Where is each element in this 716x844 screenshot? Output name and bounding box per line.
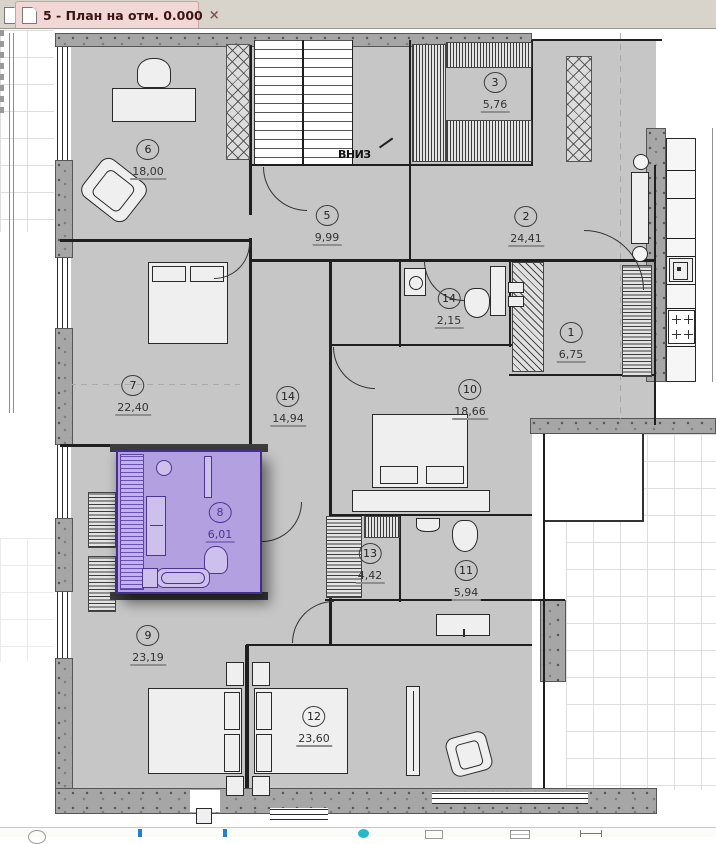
- dresser-room10[interactable]: [352, 490, 490, 512]
- counter-division: [667, 198, 695, 199]
- wall-southeast[interactable]: [530, 418, 716, 434]
- nightstand[interactable]: [226, 662, 244, 686]
- washing-machine[interactable]: [404, 268, 426, 296]
- wall-left-4[interactable]: [55, 658, 73, 790]
- tab-title: 5 - План на отм. 0.000: [43, 8, 203, 23]
- nightstand[interactable]: [226, 776, 244, 796]
- wall-left-2[interactable]: [55, 328, 73, 445]
- room-area: 18,00: [130, 165, 166, 180]
- window-left-3[interactable]: [57, 445, 71, 518]
- wall-int[interactable]: [325, 599, 565, 601]
- pillow: [256, 734, 272, 772]
- window-bottom-2[interactable]: [432, 792, 588, 804]
- cabinet-selected-room[interactable]: [146, 496, 166, 556]
- balcony-rail-line: [13, 33, 14, 413]
- pillow: [224, 692, 240, 730]
- window-bottom-1[interactable]: [270, 808, 328, 820]
- room-area: 5,76: [481, 98, 510, 113]
- room-stamp-14b[interactable]: 1414,94: [270, 386, 306, 427]
- window-left-2[interactable]: [57, 258, 71, 328]
- room-number: 1: [560, 322, 583, 343]
- counter-division: [667, 256, 695, 257]
- room-number: 2: [515, 206, 538, 227]
- layers-tool-icon[interactable]: [510, 830, 530, 839]
- room-stamp-13[interactable]: 134,42: [356, 543, 385, 584]
- room-number: 5: [316, 205, 339, 226]
- room-area: 14,94: [270, 412, 306, 427]
- counter-division: [667, 346, 695, 347]
- counter-division: [667, 170, 695, 171]
- document-icon: [22, 7, 37, 24]
- wardrobe-room3-left[interactable]: [412, 44, 446, 162]
- room-area: 2,15: [435, 314, 464, 329]
- desk-chair[interactable]: [137, 58, 171, 88]
- bathtub-selected-room[interactable]: [156, 568, 210, 588]
- sink-room11[interactable]: [416, 518, 440, 532]
- window-left-1[interactable]: [57, 47, 71, 160]
- wardrobe-room3-bottom[interactable]: [446, 120, 532, 162]
- room-area: 23,19: [130, 651, 166, 666]
- room-stamp-10[interactable]: 1018,66: [452, 379, 488, 420]
- wall-right-line: [543, 434, 545, 788]
- wardrobe-room6[interactable]: [226, 44, 250, 160]
- shower-column[interactable]: [490, 266, 506, 316]
- bar-table[interactable]: [631, 172, 649, 244]
- shelf[interactable]: [508, 282, 524, 293]
- edge-right: [712, 128, 713, 382]
- wall-left-3[interactable]: [55, 518, 73, 592]
- counter-division: [667, 308, 695, 309]
- circle-tool-icon[interactable]: [28, 830, 46, 844]
- nightstand[interactable]: [252, 776, 270, 796]
- burner-icon: [672, 330, 681, 339]
- balcony-rail-line: [9, 33, 10, 413]
- burner-icon: [684, 330, 693, 339]
- ellipse-tool-icon[interactable]: [358, 829, 369, 838]
- room-area: 5,94: [452, 586, 481, 601]
- column-east[interactable]: [566, 56, 592, 162]
- wall-int[interactable]: [245, 645, 249, 788]
- room-stamp-14a[interactable]: 142,15: [435, 288, 464, 329]
- room-number: 14: [438, 288, 461, 309]
- room-stamp-7[interactable]: 722,40: [115, 375, 151, 416]
- burner-icon: [672, 315, 681, 324]
- room-stamp-6[interactable]: 618,00: [130, 139, 166, 180]
- nightstand[interactable]: [252, 662, 270, 686]
- pillow: [380, 466, 418, 484]
- room-area: 6,75: [557, 348, 586, 363]
- room-area: 24,41: [508, 232, 544, 247]
- room-area: 6,01: [206, 528, 235, 543]
- stair-divider: [302, 40, 304, 164]
- terrace-inset: [545, 430, 644, 522]
- radiator-selected-room[interactable]: [120, 454, 144, 590]
- site-edge-hatch: [0, 30, 4, 114]
- centerline-vertical: [620, 33, 621, 421]
- room-stamp-2[interactable]: 224,41: [508, 206, 544, 247]
- wall-left-1[interactable]: [55, 160, 73, 258]
- wall-int[interactable]: [409, 40, 411, 262]
- room-stamp-9[interactable]: 923,19: [130, 625, 166, 666]
- burner-icon: [684, 315, 693, 324]
- pillow: [152, 266, 186, 282]
- room-number: 14: [277, 386, 300, 407]
- room-area: 23,60: [296, 732, 332, 747]
- pillow: [256, 692, 272, 730]
- room-number: 9: [137, 625, 160, 646]
- toilet[interactable]: [464, 288, 490, 318]
- close-icon[interactable]: ×: [209, 9, 220, 22]
- view-tab-bar: 5 - План на отм. 0.000 ×: [0, 0, 716, 29]
- stairs-down-label: ВНИЗ: [338, 148, 371, 161]
- rect-tool-icon[interactable]: [425, 830, 443, 839]
- room-number: 6: [137, 139, 160, 160]
- exterior-door[interactable]: [196, 808, 212, 824]
- toilet-room11[interactable]: [452, 520, 478, 552]
- counter-division: [667, 284, 695, 285]
- window-left-4[interactable]: [57, 592, 71, 658]
- closet-room13-top[interactable]: [364, 516, 400, 538]
- radiator-room9-2[interactable]: [88, 556, 116, 612]
- room-number: 8: [209, 502, 232, 523]
- kitchen-sink[interactable]: [669, 258, 693, 282]
- wardrobe-room3-top[interactable]: [446, 42, 532, 68]
- radiator-corridor[interactable]: [436, 614, 490, 636]
- centerline-room7: [70, 384, 240, 385]
- room-number: 12: [303, 706, 326, 727]
- stove[interactable]: [668, 310, 695, 344]
- shelf-selected-room[interactable]: [204, 456, 212, 498]
- wall-int[interactable]: [249, 238, 252, 447]
- room-area: 4,42: [356, 569, 385, 584]
- room-number: 7: [122, 375, 145, 396]
- wall-int[interactable]: [654, 165, 656, 425]
- stool[interactable]: [633, 154, 649, 170]
- wall-int[interactable]: [60, 239, 250, 242]
- room-number: 10: [459, 379, 482, 400]
- room-stamp-1[interactable]: 16,75: [557, 322, 586, 363]
- desk[interactable]: [112, 88, 196, 122]
- radiator-room9-1[interactable]: [88, 492, 116, 548]
- room-stamp-3[interactable]: 35,76: [481, 72, 510, 113]
- room-area: 9,99: [313, 231, 342, 246]
- shelf[interactable]: [508, 296, 524, 307]
- room-stamp-12[interactable]: 1223,60: [296, 706, 332, 747]
- pillow: [224, 734, 240, 772]
- room-number: 3: [484, 72, 507, 93]
- wall-int[interactable]: [329, 344, 532, 346]
- room-stamp-8-selected[interactable]: 86,01: [206, 502, 235, 543]
- wall-top-line: [532, 39, 662, 41]
- radiator-room12[interactable]: [406, 686, 420, 776]
- wall-int[interactable]: [399, 260, 401, 347]
- sink-selected-room[interactable]: [156, 460, 172, 476]
- room-stamp-11[interactable]: 115,94: [452, 560, 481, 601]
- room-number: 11: [455, 560, 478, 581]
- terrace-left-lower: [0, 538, 54, 662]
- pillow: [426, 466, 464, 484]
- room-area: 22,40: [115, 401, 151, 416]
- wall-int[interactable]: [250, 164, 532, 166]
- counter-division: [667, 238, 695, 239]
- wall-int[interactable]: [246, 644, 532, 646]
- tab-plan-0000[interactable]: 5 - План на отм. 0.000 ×: [15, 1, 199, 28]
- room-stamp-5[interactable]: 59,99: [313, 205, 342, 246]
- wardrobe-room1-left[interactable]: [512, 262, 544, 372]
- room-number: 13: [359, 543, 382, 564]
- room-area: 18,66: [452, 405, 488, 420]
- washer-selected-room[interactable]: [142, 568, 158, 588]
